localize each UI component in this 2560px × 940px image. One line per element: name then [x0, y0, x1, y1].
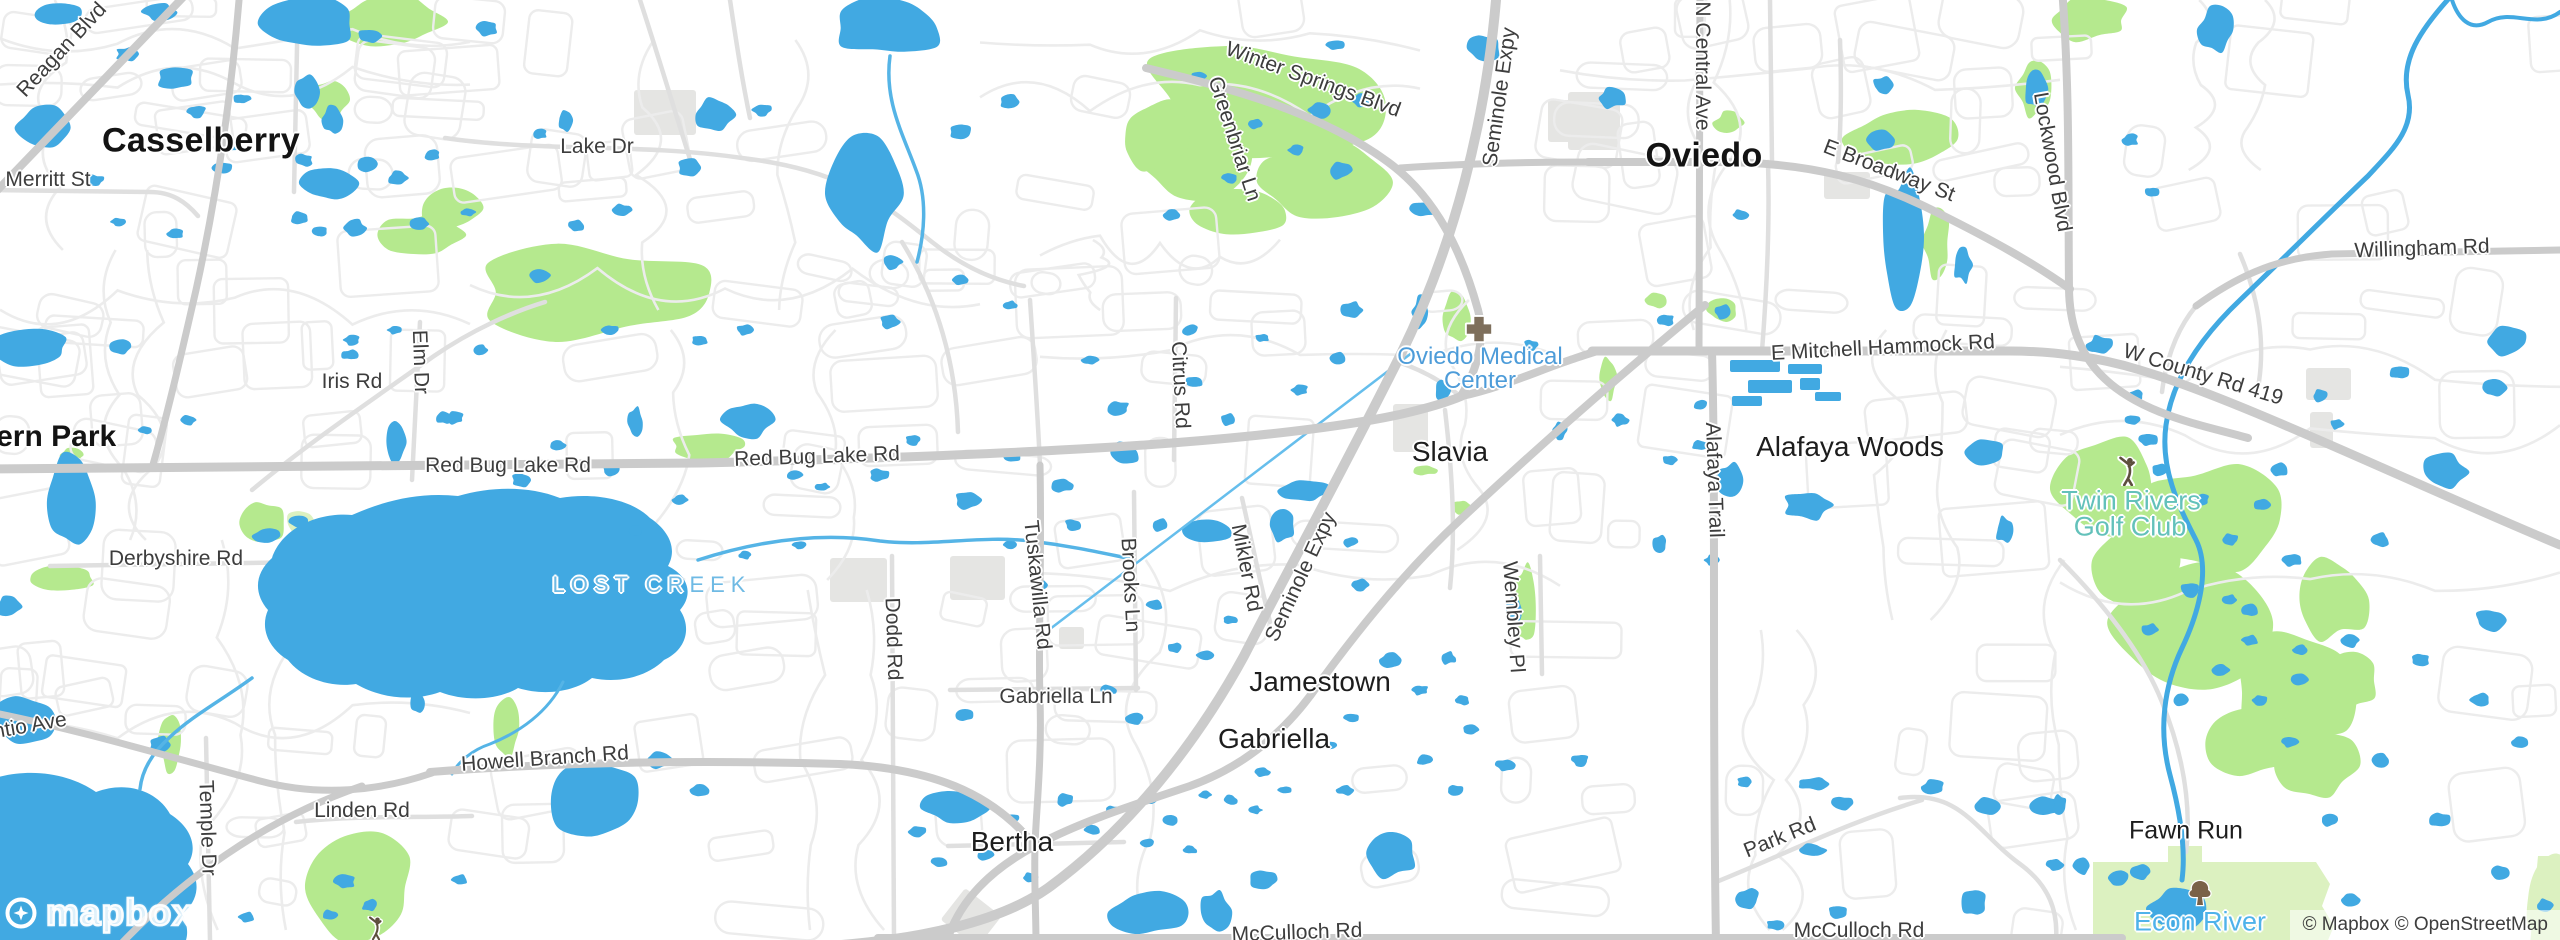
map-canvas[interactable]: CasselberryOviedoFern ParkSlaviaAlafaya …	[0, 0, 2560, 940]
mapbox-logo-icon	[4, 896, 38, 930]
mapbox-logo[interactable]: mapbox	[4, 892, 194, 934]
map-graphics	[0, 0, 2560, 940]
attribution-bar[interactable]: © Mapbox © OpenStreetMap	[2290, 910, 2560, 940]
mapbox-logo-wordmark: mapbox	[46, 892, 194, 934]
attribution-text: © Mapbox © OpenStreetMap	[2302, 914, 2548, 936]
